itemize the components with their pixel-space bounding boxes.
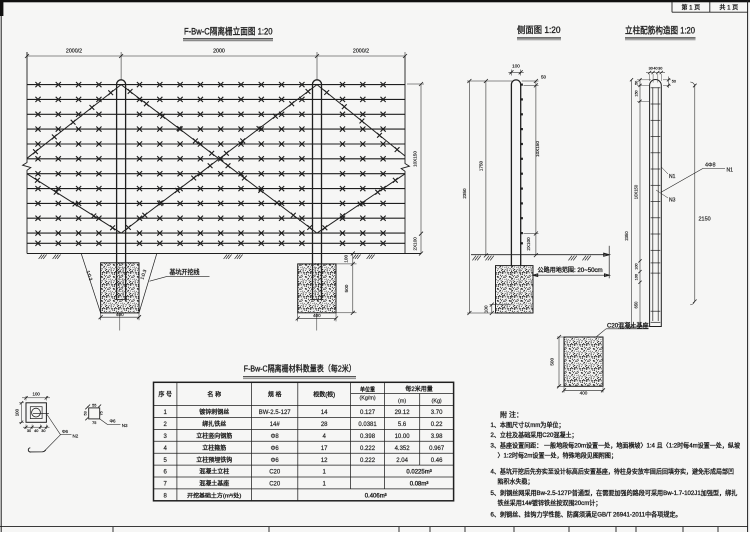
- svg-text:2000/2: 2000/2: [66, 49, 82, 55]
- svg-text:650: 650: [633, 301, 638, 309]
- svg-text:0.0381: 0.0381: [358, 422, 377, 428]
- svg-text:〉1:2时每2m设置一处，特殊地段见图附图；: 〉1:2时每2m设置一处，特殊地段见图附图；: [498, 451, 618, 460]
- svg-text:共 1 页: 共 1 页: [719, 4, 738, 12]
- svg-text:第 1 页: 第 1 页: [681, 4, 700, 12]
- svg-text:开挖基础土方(m³/处): 开挖基础土方(m³/处): [187, 492, 241, 500]
- svg-text:(Kg): (Kg): [432, 399, 442, 405]
- svg-text:2、立柱及基础采用C20混凝土；: 2、立柱及基础采用C20混凝土；: [491, 430, 578, 439]
- svg-text:10X150: 10X150: [535, 141, 540, 157]
- svg-text:55: 55: [92, 403, 96, 407]
- svg-text:50: 50: [672, 80, 676, 84]
- svg-text:500: 500: [344, 284, 349, 292]
- svg-text:侧面图 1:20: 侧面图 1:20: [517, 24, 561, 35]
- svg-text:10X150: 10X150: [633, 184, 638, 199]
- svg-text:混凝土基座: 混凝土基座: [199, 480, 229, 488]
- svg-text:F-Bw-C隔离栅材料数量表（每2米）: F-Bw-C隔离栅材料数量表（每2米）: [244, 363, 356, 374]
- svg-text:C20: C20: [269, 470, 281, 476]
- svg-text:0.22: 0.22: [431, 422, 443, 428]
- svg-text:立柱箍筋: 立柱箍筋: [202, 444, 226, 452]
- svg-text:50: 50: [541, 75, 547, 80]
- svg-text:12: 12: [321, 458, 328, 464]
- svg-text:名 称: 名 称: [207, 390, 221, 398]
- svg-text:3、基座设置间距： 一般地段每20m设置一处，地面横坡〉1: 3、基座设置间距： 一般地段每20m设置一处，地面横坡〉1:4 且〈1:2时每4…: [491, 440, 741, 449]
- svg-text:3.70: 3.70: [431, 410, 443, 416]
- svg-text:N2: N2: [73, 433, 79, 438]
- svg-text:10X150: 10X150: [412, 151, 417, 167]
- svg-text:0.0225m³: 0.0225m³: [406, 470, 431, 476]
- svg-text:100: 100: [512, 64, 520, 69]
- svg-text:Φ6: Φ6: [271, 458, 280, 464]
- svg-text:0.222: 0.222: [360, 446, 376, 452]
- svg-text:2000: 2000: [213, 49, 225, 55]
- svg-text:29.12: 29.12: [395, 410, 411, 416]
- svg-text:Φ6: Φ6: [109, 419, 116, 424]
- svg-text:序 号: 序 号: [158, 390, 172, 398]
- svg-text:4Φ8: 4Φ8: [705, 162, 716, 168]
- svg-text:2150: 2150: [699, 216, 711, 222]
- svg-text:0.46: 0.46: [431, 458, 443, 464]
- svg-text:50: 50: [635, 81, 639, 85]
- svg-text:单位重: 单位重: [360, 386, 376, 394]
- svg-text:75: 75: [100, 411, 104, 415]
- svg-text:53: 53: [84, 411, 88, 415]
- svg-text:100: 100: [15, 408, 20, 416]
- svg-text:根数(根): 根数(根): [313, 390, 335, 398]
- svg-text:(Kg/m): (Kg/m): [359, 396, 375, 402]
- svg-text:100: 100: [343, 255, 348, 263]
- svg-text:3.98: 3.98: [431, 434, 443, 440]
- svg-text:镀锌刺钢丝: 镀锌刺钢丝: [199, 408, 229, 416]
- svg-text:铁丝采用14#镀锌铁丝按双围20cm计；: 铁丝采用14#镀锌铁丝按双围20cm计；: [498, 498, 602, 507]
- svg-text:N3: N3: [122, 423, 128, 428]
- svg-text:100: 100: [635, 263, 639, 269]
- svg-text:0.127: 0.127: [360, 410, 376, 416]
- svg-text:1、本图尺寸以mm为单位；: 1、本图尺寸以mm为单位；: [491, 420, 565, 429]
- svg-text:5、刺钢丝网采用Bw-2.5-127P普通型，在需要加强的路: 5、刺钢丝网采用Bw-2.5-127P普通型，在需要加强的路段可采用Bw-1.7…: [491, 488, 738, 497]
- svg-text:N3: N3: [669, 198, 676, 204]
- svg-text:1750: 1750: [479, 160, 484, 171]
- svg-text:30: 30: [27, 429, 31, 433]
- svg-text:4、基坑开挖后先夯实至设计标高后安置基座，待柱身安放牢固后回: 4、基坑开挖后先夯实至设计标高后安置基座，待柱身安放牢固后回填夯实，避免形成局部…: [491, 466, 735, 475]
- svg-text:0.398: 0.398: [360, 434, 376, 440]
- svg-text:4.352: 4.352: [395, 446, 411, 452]
- svg-text:基坑开挖线: 基坑开挖线: [170, 267, 201, 276]
- svg-text:100: 100: [33, 392, 41, 397]
- svg-text:F-Bw-C隔离栅立面图 1:20: F-Bw-C隔离栅立面图 1:20: [184, 25, 273, 36]
- svg-text:100: 100: [635, 274, 639, 280]
- svg-text:14#: 14#: [270, 422, 281, 428]
- svg-text:0.08m³: 0.08m³: [410, 482, 429, 488]
- svg-text:0.222: 0.222: [360, 458, 376, 464]
- svg-text:400: 400: [580, 391, 588, 396]
- svg-text:75: 75: [92, 421, 96, 425]
- svg-text:2.04: 2.04: [396, 458, 408, 464]
- svg-text:BW-2.5-127: BW-2.5-127: [259, 410, 292, 416]
- svg-text:(m): (m): [398, 399, 406, 405]
- svg-text:40: 40: [653, 66, 657, 70]
- svg-text:C20: C20: [269, 482, 281, 488]
- svg-text:C20混凝土基座: C20混凝土基座: [607, 320, 649, 329]
- svg-text:2X100: 2X100: [412, 237, 417, 251]
- svg-text:500: 500: [550, 358, 555, 366]
- svg-text:N1: N1: [727, 167, 734, 173]
- svg-text:6、刺钢丝、挂钩力学性能、防腐须满足GB/T 26941-2: 6、刺钢丝、挂钩力学性能、防腐须满足GB/T 26941-2011中各项规定。: [491, 509, 682, 518]
- svg-text:立柱预埋铁钩: 立柱预埋铁钩: [196, 456, 232, 464]
- svg-text:150: 150: [635, 90, 639, 96]
- svg-text:混凝土立柱: 混凝土立柱: [199, 468, 229, 476]
- svg-text:14: 14: [321, 410, 328, 416]
- svg-text:2000/2: 2000/2: [353, 49, 369, 55]
- svg-text:立柱竖向钢筋: 立柱竖向钢筋: [196, 432, 232, 440]
- svg-text:30: 30: [658, 66, 662, 70]
- svg-text:绑扎铁丝: 绑扎铁丝: [202, 420, 226, 428]
- svg-text:30: 30: [649, 66, 653, 70]
- svg-text:每2米用量: 每2米用量: [405, 385, 432, 393]
- svg-text:2350: 2350: [462, 188, 467, 199]
- svg-text:N1: N1: [669, 174, 676, 180]
- svg-text:100: 100: [483, 305, 488, 313]
- svg-text:Φ6: Φ6: [62, 429, 69, 434]
- svg-text:Φ6: Φ6: [271, 446, 280, 452]
- svg-text:30: 30: [41, 429, 45, 433]
- svg-text:0.406m³: 0.406m³: [365, 494, 387, 500]
- svg-text:陷积水失稳；: 陷积水失稳；: [498, 477, 534, 486]
- svg-text:公路用地范围: 20~50cm: 公路用地范围: 20~50cm: [538, 266, 603, 274]
- svg-text:0.967: 0.967: [429, 446, 445, 452]
- svg-text:2X100: 2X100: [526, 237, 531, 251]
- svg-text:2350: 2350: [624, 231, 629, 241]
- svg-text:5.6: 5.6: [398, 422, 407, 428]
- svg-text:17: 17: [321, 446, 328, 452]
- svg-text:40: 40: [34, 429, 38, 433]
- svg-text:附 注：: 附 注：: [500, 410, 523, 419]
- svg-text:规 格: 规 格: [268, 390, 282, 398]
- svg-text:立柱配筋构造图 1:20: 立柱配筋构造图 1:20: [625, 24, 695, 35]
- svg-text:10.00: 10.00: [395, 434, 411, 440]
- svg-text:28: 28: [321, 422, 328, 428]
- svg-text:Φ8: Φ8: [271, 434, 280, 440]
